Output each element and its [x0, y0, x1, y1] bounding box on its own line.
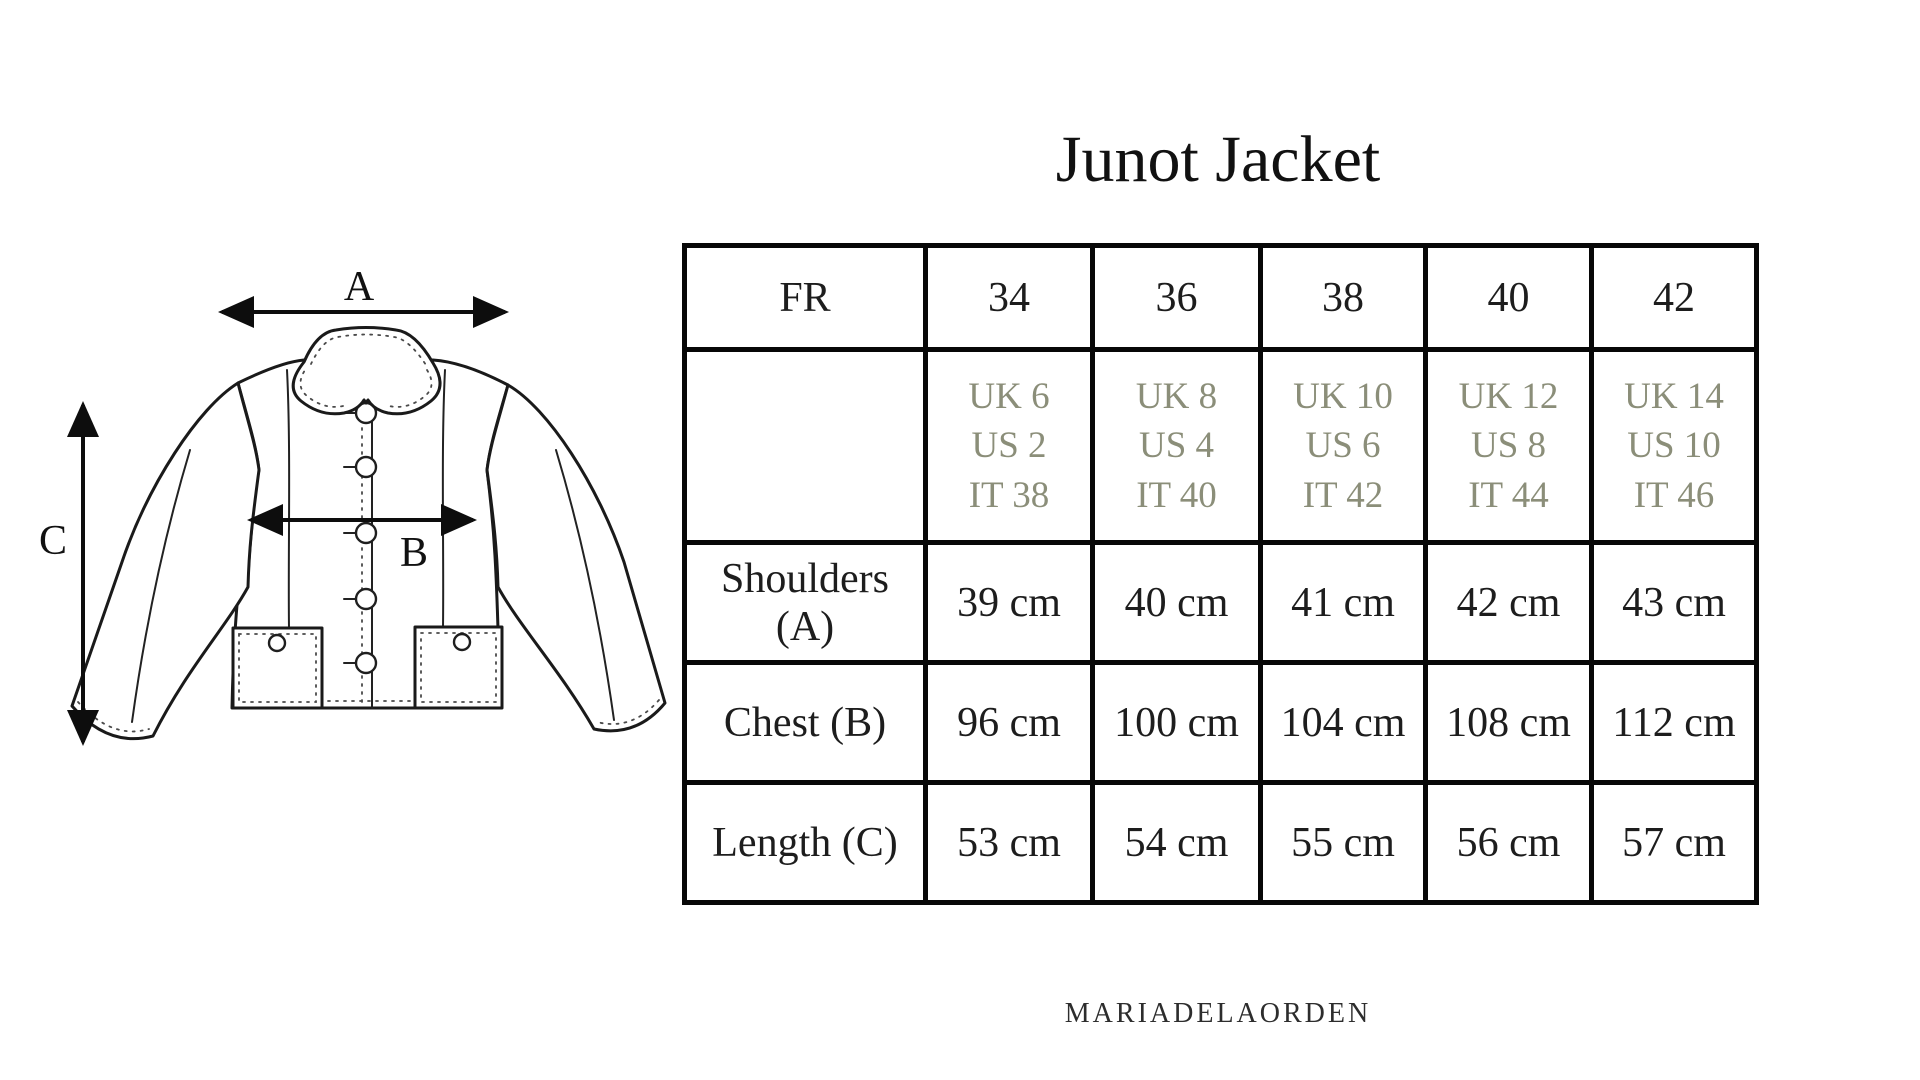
measurement-cell: 43 cm [1592, 543, 1757, 663]
size-cell: 40 [1426, 246, 1592, 350]
chest-label: B [400, 530, 428, 576]
measurement-cell: 112 cm [1592, 663, 1757, 783]
measurement-cell: 42 cm [1426, 543, 1592, 663]
conversion-cell: UK 12 US 8 IT 44 [1426, 350, 1592, 543]
measurement-label: Shoulders (A) [685, 543, 926, 663]
left-sleeve [72, 383, 259, 739]
size-table: FR 34 36 38 40 42 UK 6 US 2 IT 38 UK 8 U… [682, 243, 1759, 905]
conversion-cell: UK 8 US 4 IT 40 [1093, 350, 1261, 543]
measurement-cell: 40 cm [1093, 543, 1261, 663]
conversion-cell: UK 6 US 2 IT 38 [926, 350, 1093, 543]
table-row-conversions: UK 6 US 2 IT 38 UK 8 US 4 IT 40 UK 10 US… [685, 350, 1757, 543]
size-cell: 34 [926, 246, 1093, 350]
collar [293, 328, 440, 414]
brand-logo-text: MARIADELAORDEN [682, 998, 1754, 1030]
table-row-sizes: FR 34 36 38 40 42 [685, 246, 1757, 350]
size-cell: 38 [1261, 246, 1426, 350]
pocket-button [269, 635, 285, 651]
measurement-cell: 57 cm [1592, 783, 1757, 903]
conversion-cell: UK 10 US 6 IT 42 [1261, 350, 1426, 543]
measurement-cell: 41 cm [1261, 543, 1426, 663]
measurement-cell: 108 cm [1426, 663, 1592, 783]
size-cell: 42 [1592, 246, 1757, 350]
measurement-cell: 56 cm [1426, 783, 1592, 903]
measurement-cell: 53 cm [926, 783, 1093, 903]
page-title: Junot Jacket [682, 122, 1754, 198]
length-label: C [39, 518, 67, 564]
measurement-cell: 100 cm [1093, 663, 1261, 783]
pocket-button [454, 634, 470, 650]
shoulder-label: A [344, 270, 375, 310]
table-row-chest: Chest (B) 96 cm 100 cm 104 cm 108 cm 112… [685, 663, 1757, 783]
size-guide-sheet: Junot Jacket [0, 0, 1920, 1080]
size-cell: 36 [1093, 246, 1261, 350]
measurement-label: Length (C) [685, 783, 926, 903]
measurement-cell: 55 cm [1261, 783, 1426, 903]
table-row-length: Length (C) 53 cm 54 cm 55 cm 56 cm 57 cm [685, 783, 1757, 903]
size-system-label: FR [685, 246, 926, 350]
measurement-cell: 54 cm [1093, 783, 1261, 903]
measurement-cell: 96 cm [926, 663, 1093, 783]
right-sleeve [487, 385, 665, 731]
jacket-diagram: A B C [36, 270, 684, 770]
measurement-label: Chest (B) [685, 663, 926, 783]
conversion-cell: UK 14 US 10 IT 46 [1592, 350, 1757, 543]
measurement-cell: 39 cm [926, 543, 1093, 663]
measurement-cell: 104 cm [1261, 663, 1426, 783]
empty-cell [685, 350, 926, 543]
table-row-shoulders: Shoulders (A) 39 cm 40 cm 41 cm 42 cm 43… [685, 543, 1757, 663]
